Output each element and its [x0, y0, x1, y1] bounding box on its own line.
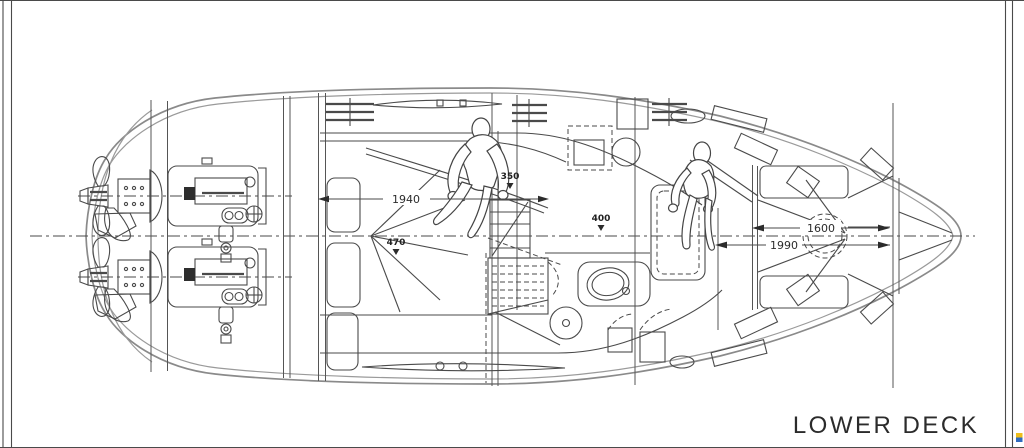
dimension-1990: 1990	[715, 237, 890, 252]
deck-oval-top	[671, 109, 705, 123]
dim-label-350: 350	[501, 172, 520, 182]
human-figure-dinette	[669, 142, 716, 250]
port-engine	[78, 157, 292, 262]
logo-mark	[1016, 433, 1023, 442]
companionway-stairs	[488, 200, 562, 265]
deck-hatch-round	[612, 138, 640, 166]
dim-label-400: 400	[592, 214, 611, 224]
marker-400: 400	[592, 214, 611, 231]
dimension-1600: 1600	[752, 220, 890, 235]
dim-label-1940: 1940	[392, 193, 420, 206]
drawing-title: LOWER DECK	[793, 412, 979, 439]
head-compartment	[495, 253, 672, 362]
deck-plan-drawing: 1940 1990 1600 350 400 470 LOWER DECK	[0, 0, 1024, 448]
chart-table-dashed	[568, 126, 612, 170]
louvre-vent-fwd	[652, 98, 687, 126]
side-deck-bottom	[320, 290, 722, 371]
dim-label-1600: 1600	[807, 222, 835, 235]
starboard-engine	[78, 238, 292, 343]
louvre-vent-aft	[326, 98, 374, 126]
dim-label-1990: 1990	[770, 239, 798, 252]
dimension-1940: 1940	[318, 190, 549, 206]
galley-unit	[486, 253, 558, 383]
dim-label-470: 470	[387, 238, 406, 248]
frame-border-left	[3, 0, 12, 448]
boat-deck-plan-page: 1940 1990 1600 350 400 470 LOWER DECK	[0, 0, 1024, 448]
shower	[550, 307, 582, 339]
frame-border-right	[1006, 0, 1013, 448]
toilet	[585, 265, 631, 303]
